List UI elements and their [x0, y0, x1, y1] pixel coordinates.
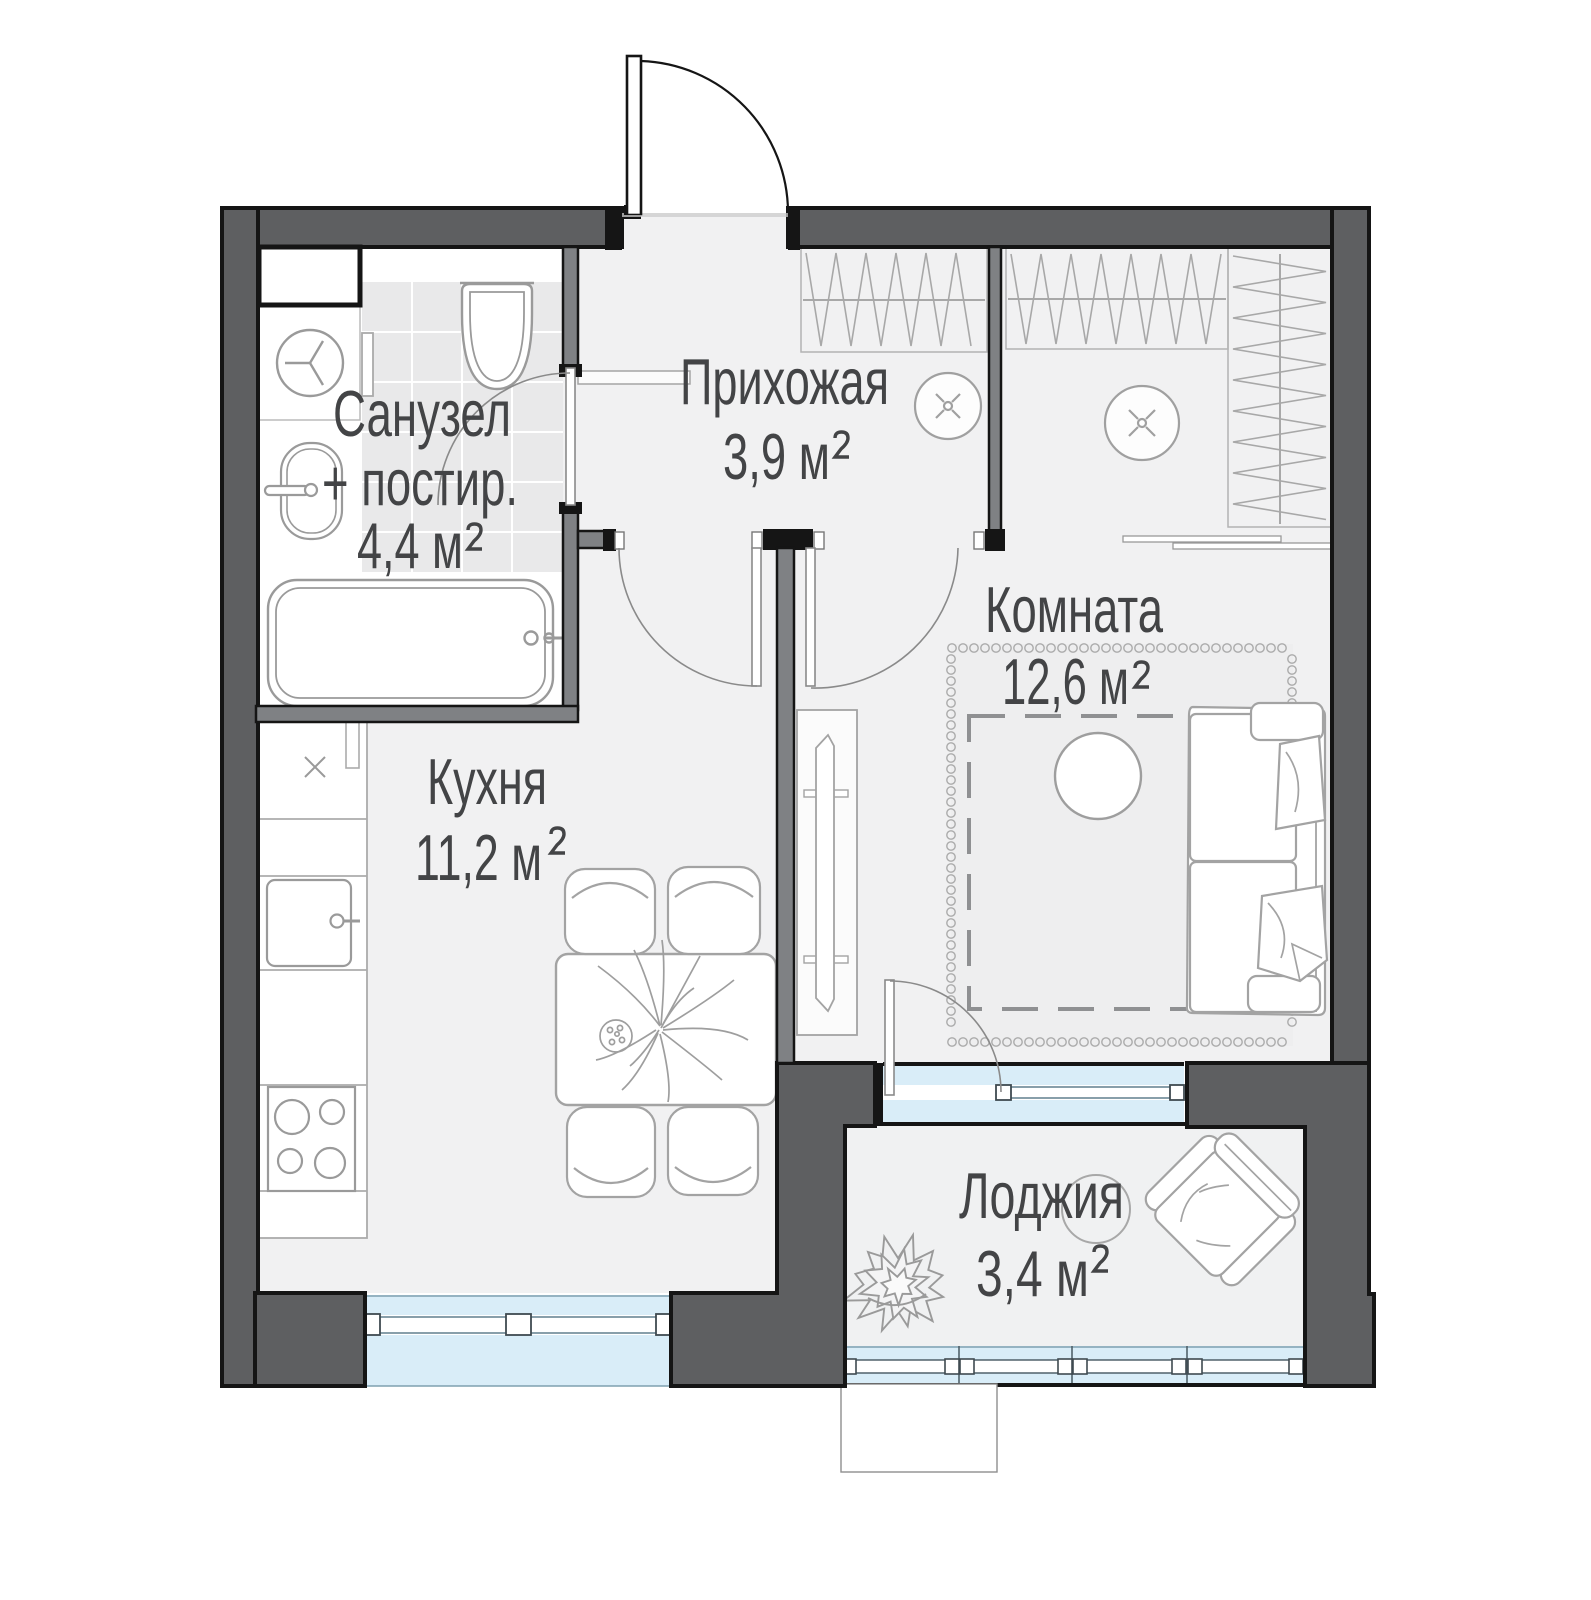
svg-text:3,9 м: 3,9 м — [723, 420, 830, 493]
svg-text:11,2 м: 11,2 м — [415, 821, 542, 894]
svg-text:Кухня: Кухня — [427, 745, 547, 818]
svg-text:4,4 м: 4,4 м — [357, 509, 463, 582]
svg-text:Прихожая: Прихожая — [680, 345, 889, 418]
svg-text:Санузел: Санузел — [333, 377, 511, 450]
svg-text:Лоджия: Лоджия — [959, 1159, 1124, 1232]
svg-text:Комната: Комната — [985, 573, 1164, 646]
svg-text:3,4 м: 3,4 м — [976, 1237, 1089, 1310]
svg-text:12,6 м: 12,6 м — [1002, 645, 1129, 718]
